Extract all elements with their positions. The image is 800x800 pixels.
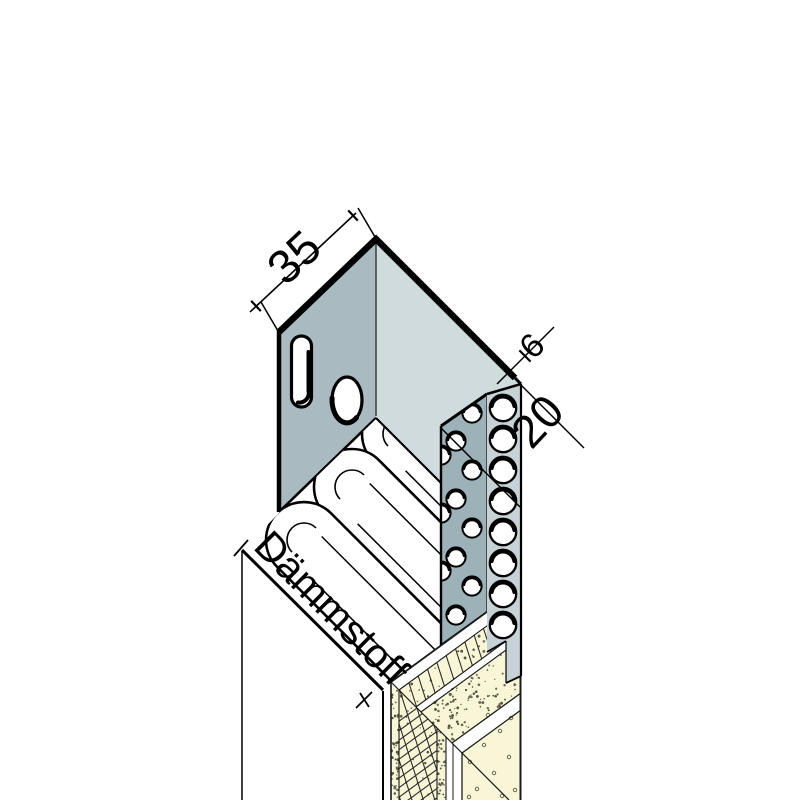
drawing-canvas: 35 6 20 Dämmstoff bbox=[0, 0, 800, 800]
dimension-35-text: 35 bbox=[257, 220, 331, 294]
dimension-6: 6 bbox=[497, 326, 554, 384]
technical-drawing: 35 6 20 Dämmstoff bbox=[0, 0, 800, 800]
dimension-6-text: 6 bbox=[512, 326, 552, 366]
